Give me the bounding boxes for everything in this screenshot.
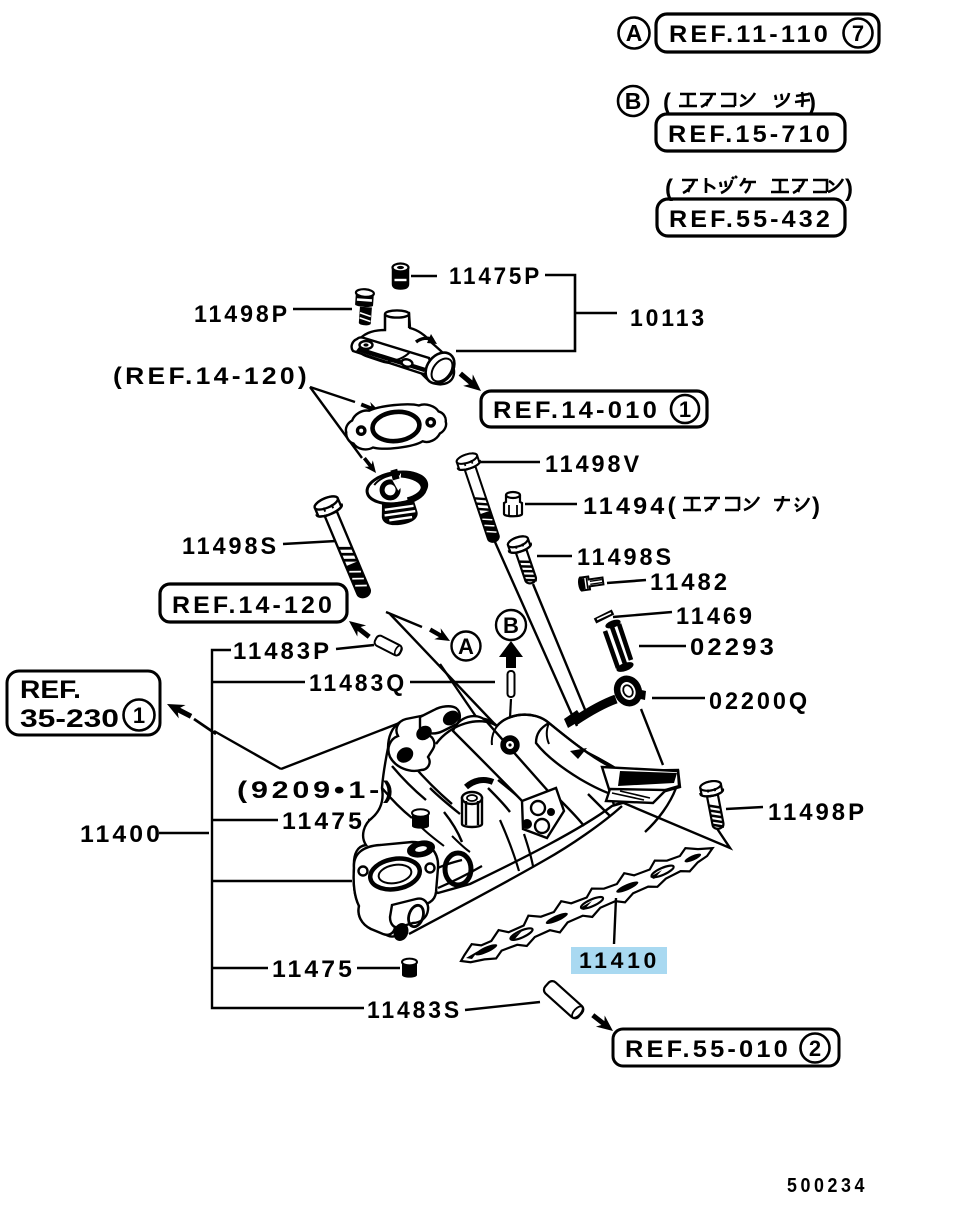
svg-text:35-230: 35-230 [20, 705, 119, 733]
svg-text:11410: 11410 [579, 948, 660, 973]
svg-text:02293: 02293 [690, 634, 777, 661]
svg-text:(: ( [663, 89, 671, 116]
svg-text:REF.15-710: REF.15-710 [668, 121, 833, 148]
svg-text:REF.14-120: REF.14-120 [172, 592, 335, 619]
svg-text:): ) [812, 493, 820, 520]
svg-text:11498P: 11498P [768, 799, 867, 826]
svg-text:11469: 11469 [676, 603, 755, 630]
svg-text:11482: 11482 [650, 569, 730, 596]
svg-text:500234: 500234 [787, 1175, 868, 1197]
svg-text:REF.11-110: REF.11-110 [669, 21, 831, 48]
svg-text:11494(: 11494( [583, 493, 679, 520]
svg-text:11475P: 11475P [449, 263, 542, 290]
svg-text:REF.55-010: REF.55-010 [625, 1036, 791, 1063]
svg-text:11498S: 11498S [577, 544, 674, 571]
svg-text:A: A [458, 634, 474, 659]
svg-text:1: 1 [679, 397, 691, 422]
svg-text:11498P: 11498P [194, 301, 290, 328]
svg-text:11483Q: 11483Q [309, 670, 407, 697]
svg-text:REF.: REF. [20, 676, 81, 704]
svg-text:02200Q: 02200Q [709, 688, 810, 715]
svg-text:11400: 11400 [80, 821, 163, 848]
svg-text:7: 7 [852, 21, 864, 46]
svg-text:2: 2 [809, 1036, 821, 1061]
svg-text:11498V: 11498V [545, 451, 642, 478]
svg-text:(9209•1-): (9209•1-) [237, 777, 397, 804]
svg-text:11498S: 11498S [182, 533, 279, 560]
svg-text:1: 1 [133, 703, 145, 728]
svg-text:B: B [503, 613, 519, 638]
svg-text:11483S: 11483S [367, 997, 462, 1024]
svg-text:11475: 11475 [272, 956, 355, 983]
svg-text:11475: 11475 [282, 808, 365, 835]
svg-text:11483P: 11483P [233, 638, 332, 665]
svg-text:): ) [845, 175, 853, 202]
svg-text:10113: 10113 [630, 305, 707, 332]
svg-text:(REF.14-120): (REF.14-120) [113, 363, 310, 390]
svg-text:REF.55-432: REF.55-432 [669, 206, 833, 233]
svg-text:REF.14-010: REF.14-010 [493, 397, 660, 424]
svg-text:B: B [625, 88, 642, 114]
svg-text:): ) [808, 89, 816, 116]
svg-text:A: A [626, 20, 643, 46]
